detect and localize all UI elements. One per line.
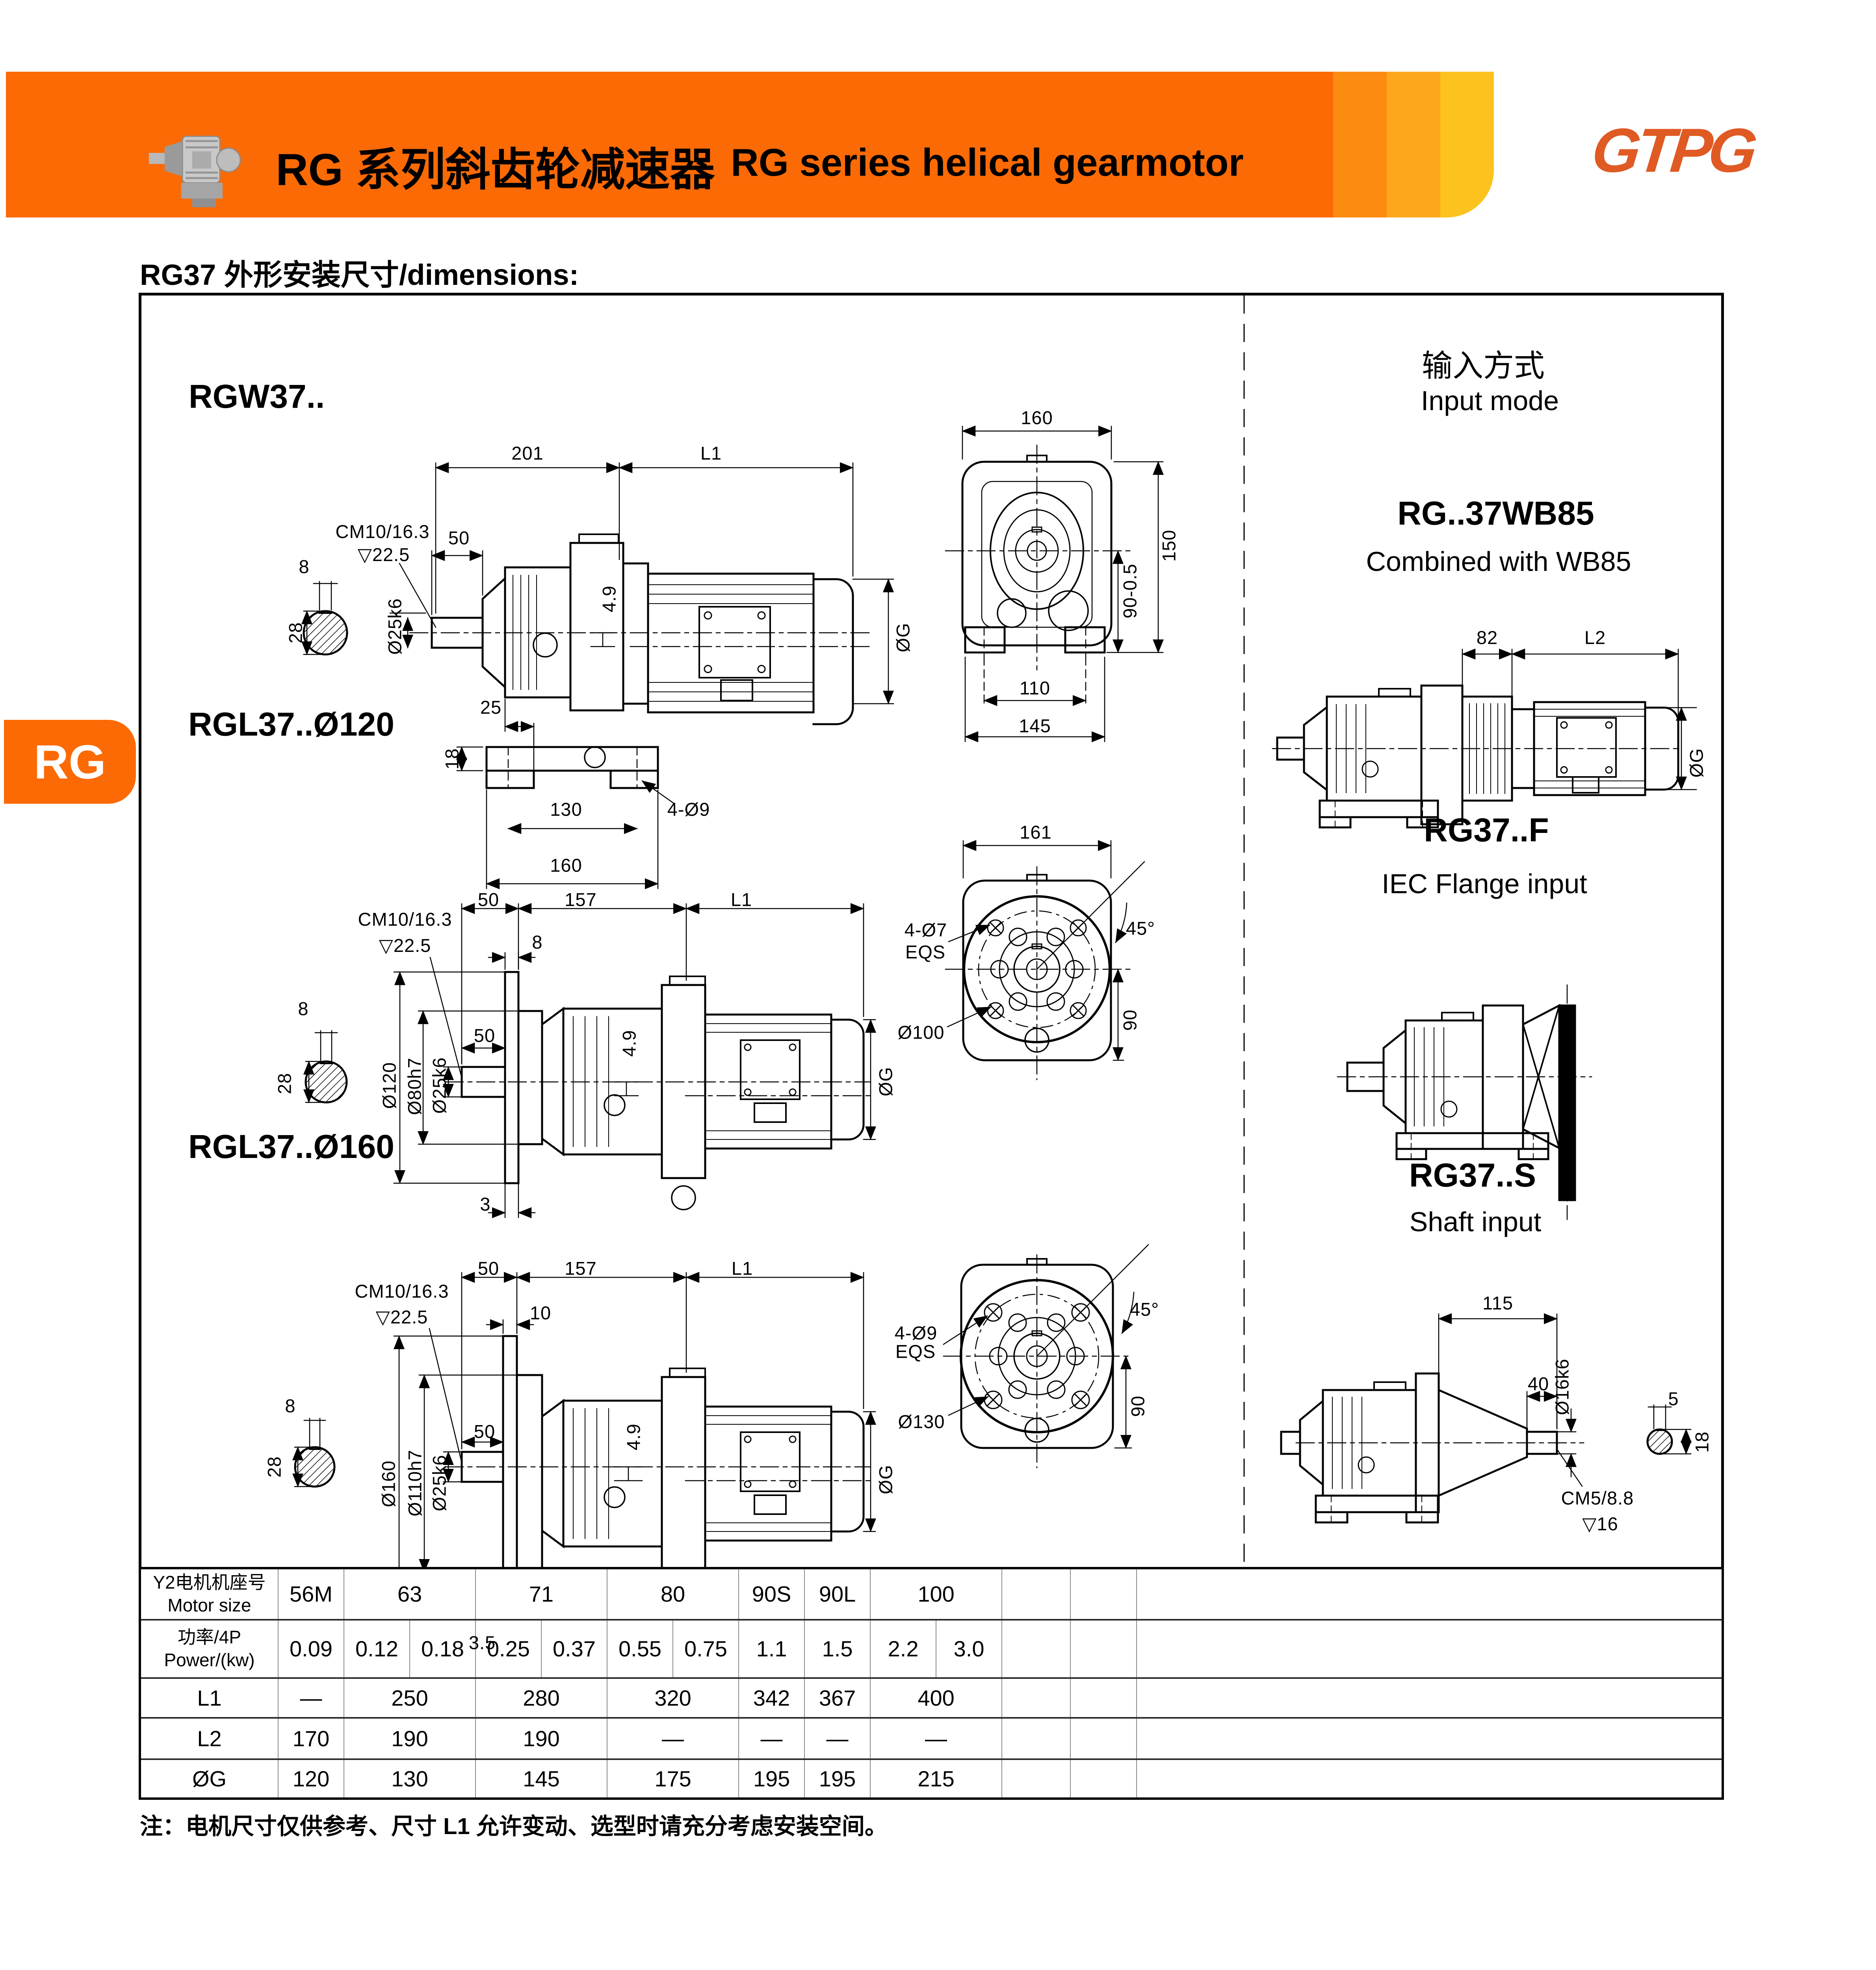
dim-label: Ø25k6 [429, 1455, 450, 1511]
dim-label: 4-Ø7 [905, 919, 947, 941]
cell-l1: 342 [739, 1678, 804, 1718]
dim-label: CM10/16.3 [355, 1280, 449, 1302]
cell-power: 0.37 [541, 1620, 607, 1678]
dim-label: 5 [1668, 1388, 1679, 1410]
dim-label: ØG [875, 1067, 897, 1096]
cell-power: 0.12 [344, 1620, 410, 1678]
dim-label: Ø25k6 [429, 1057, 450, 1113]
dim-label: 18 [441, 748, 463, 769]
input-mode-item-subtitle: Combined with WB85 [1366, 546, 1631, 577]
row-header-og: ØG [141, 1759, 278, 1797]
dim-label: 25 [480, 697, 502, 718]
cell-empty [1002, 1569, 1070, 1620]
dim-label: 3.5 [469, 1632, 496, 1654]
table-row: L1 — 250 280 320 342 367 400 [141, 1678, 1722, 1718]
cell-l2: — [870, 1718, 1002, 1759]
cell-empty [1002, 1678, 1070, 1718]
dim-label: 8 [298, 998, 308, 1020]
spec-table: Y2电机机座号 Motor size 56M 63 71 80 90S 90L … [139, 1567, 1724, 1800]
cell-power: 1.1 [739, 1620, 804, 1678]
input-mode-item-title: RG..37WB85 [1397, 494, 1594, 533]
dim-label: 90-0.5 [1119, 563, 1141, 618]
dim-label: 8 [285, 1395, 295, 1417]
cell-l2: — [607, 1718, 739, 1759]
cell-l2: 190 [476, 1718, 607, 1759]
dim-label: L1 [700, 442, 722, 464]
input-mode-title-zh: 输入方式 [1422, 341, 1545, 385]
cell-l1: 400 [870, 1678, 1002, 1718]
dim-label: 90 [1127, 1396, 1149, 1417]
cell-l1: 280 [476, 1678, 607, 1718]
dim-label: 18 [1691, 1431, 1713, 1453]
cell-l2: — [804, 1718, 870, 1759]
cell-empty [1070, 1678, 1137, 1718]
dim-label: Ø110h7 [404, 1450, 426, 1517]
dim-label: 50 [478, 1258, 499, 1279]
cell-motor-size: 90S [739, 1569, 804, 1620]
dim-label: 115 [1482, 1292, 1513, 1314]
dim-label: 50 [474, 1421, 495, 1442]
row-header-motor-size: Y2电机机座号 Motor size [141, 1569, 278, 1620]
dim-label: 130 [550, 799, 582, 820]
cell-motor-size: 56M [278, 1569, 344, 1620]
cell-og: 195 [804, 1759, 870, 1797]
cell-og: 175 [607, 1759, 739, 1797]
cell-power: 0.55 [607, 1620, 673, 1678]
cell-og: 195 [739, 1759, 804, 1797]
input-mode-title-en: Input mode [1421, 385, 1559, 416]
row-header-en: Motor size [141, 1594, 278, 1617]
cell-empty [1137, 1718, 1722, 1759]
table-row: L2 170 190 190 — — — — [141, 1718, 1722, 1759]
dim-label: 10 [530, 1302, 551, 1324]
cell-l1: 250 [344, 1678, 476, 1718]
row-header-l2: L2 [141, 1718, 278, 1759]
dim-label: ▽22.5 [358, 544, 410, 566]
cell-l2: 190 [344, 1718, 476, 1759]
cell-empty [1002, 1620, 1070, 1678]
dim-label: 45° [1130, 1299, 1159, 1320]
row-header-power: 功率/4P Power/(kw) [141, 1620, 278, 1678]
cell-motor-size: 90L [804, 1569, 870, 1620]
cell-l2: — [739, 1718, 804, 1759]
cell-empty [1070, 1718, 1137, 1759]
dim-label: 4.9 [623, 1424, 645, 1450]
cell-l1: 320 [607, 1678, 739, 1718]
dim-label: Ø25k6 [384, 598, 406, 654]
gearmotor-photo-icon [145, 125, 245, 210]
cell-og: 130 [344, 1759, 476, 1797]
dim-label: Ø130 [898, 1411, 945, 1433]
cell-l2: 170 [278, 1718, 344, 1759]
table-row: Y2电机机座号 Motor size 56M 63 71 80 90S 90L … [141, 1569, 1722, 1620]
cell-power: 2.2 [870, 1620, 936, 1678]
dim-label: ▽22.5 [376, 1306, 428, 1328]
cell-power: 3.0 [936, 1620, 1002, 1678]
dim-label: 50 [478, 889, 499, 911]
cell-motor-size: 63 [344, 1569, 476, 1620]
cell-power: 0.18 [410, 1620, 476, 1678]
dim-label: CM10/16.3 [336, 521, 430, 543]
row-header-zh: 功率/4P [141, 1626, 278, 1649]
dim-label: ▽22.5 [379, 935, 431, 957]
dim-label: 90 [1119, 1009, 1141, 1031]
cell-l1: — [278, 1678, 344, 1718]
cell-empty [1137, 1759, 1722, 1797]
cell-og: 215 [870, 1759, 1002, 1797]
input-mode-item-subtitle: Shaft input [1410, 1206, 1542, 1238]
dim-label: 8 [299, 556, 309, 578]
dim-label: 45° [1126, 918, 1155, 939]
dim-label: 40 [1528, 1373, 1549, 1395]
dim-label: Ø120 [379, 1062, 400, 1109]
row-header-zh: Y2电机机座号 [141, 1571, 278, 1594]
dim-label: CM5/8.8 [1561, 1487, 1634, 1509]
dim-label: 4.9 [619, 1030, 640, 1057]
cell-power: 0.75 [673, 1620, 739, 1678]
cell-empty [1070, 1759, 1137, 1797]
dim-label: EQS [895, 1341, 936, 1362]
dim-label: ØG [1686, 748, 1707, 777]
row-header-l1: L1 [141, 1678, 278, 1718]
dim-label: 110 [1020, 677, 1050, 699]
dim-label: ▽16 [1582, 1513, 1618, 1535]
drawing-title: RGL37..Ø160 [188, 1128, 394, 1166]
cell-og: 145 [476, 1759, 607, 1797]
dim-label: 201 [511, 442, 543, 464]
cell-power: 0.09 [278, 1620, 344, 1678]
drawing-title: RGL37..Ø120 [188, 705, 394, 743]
dim-label: 161 [1020, 821, 1051, 843]
cell-empty [1137, 1678, 1722, 1718]
dim-label: 50 [448, 527, 470, 549]
dim-label: Ø100 [898, 1022, 945, 1043]
cell-empty [1137, 1569, 1722, 1620]
dim-label: 8 [532, 931, 542, 953]
dim-label: Ø160 [378, 1461, 399, 1507]
catalog-page: RG 系列斜齿轮减速器 RG series helical gearmotor … [0, 0, 1876, 1970]
dim-label: 150 [1158, 530, 1180, 561]
row-header-en: Power/(kw) [141, 1649, 278, 1672]
cell-power: 1.5 [804, 1620, 870, 1678]
table-row: ØG 120 130 145 175 195 195 215 [141, 1759, 1722, 1797]
cell-og: 120 [278, 1759, 344, 1797]
dim-label: Ø80h7 [404, 1057, 425, 1115]
dim-label: L1 [731, 889, 752, 911]
dim-label: 4.9 [598, 585, 620, 612]
input-mode-item-title: RG37..S [1409, 1156, 1536, 1195]
cell-motor-size: 80 [607, 1569, 739, 1620]
cell-l1: 367 [804, 1678, 870, 1718]
dim-label: 28 [285, 622, 306, 643]
dim-label: 28 [274, 1073, 295, 1094]
cell-empty [1070, 1569, 1137, 1620]
dim-label: 82 [1477, 627, 1498, 649]
dim-label: 157 [565, 1258, 596, 1279]
input-mode-item-subtitle: IEC Flange input [1382, 868, 1587, 900]
table-row: 功率/4P Power/(kw) 0.09 0.12 0.18 0.25 0.3… [141, 1620, 1722, 1678]
dim-label: EQS [905, 941, 945, 963]
cell-motor-size: 71 [476, 1569, 607, 1620]
dim-label: L2 [1584, 627, 1606, 649]
dim-label: Ø16k6 [1551, 1359, 1573, 1415]
dim-label: 160 [550, 855, 582, 876]
dim-label: 145 [1019, 715, 1051, 737]
dim-label: L1 [732, 1258, 753, 1279]
dim-label: 4-Ø9 [667, 799, 710, 820]
dim-label: 3 [480, 1193, 490, 1215]
dim-label: ØG [892, 623, 914, 652]
dim-label: 50 [474, 1025, 495, 1046]
dim-label: ØG [875, 1464, 897, 1494]
dim-label: CM10/16.3 [358, 909, 452, 930]
cell-empty [1002, 1759, 1070, 1797]
drawing-title: RGW37.. [189, 377, 325, 416]
cell-motor-size: 100 [870, 1569, 1002, 1620]
cell-empty [1070, 1620, 1137, 1678]
cell-empty [1002, 1718, 1070, 1759]
cell-empty [1137, 1620, 1722, 1678]
input-mode-item-title: RG37..F [1424, 811, 1549, 849]
dim-label: 157 [565, 889, 596, 911]
dim-label: 28 [264, 1456, 285, 1477]
dim-label: 160 [1021, 407, 1053, 429]
